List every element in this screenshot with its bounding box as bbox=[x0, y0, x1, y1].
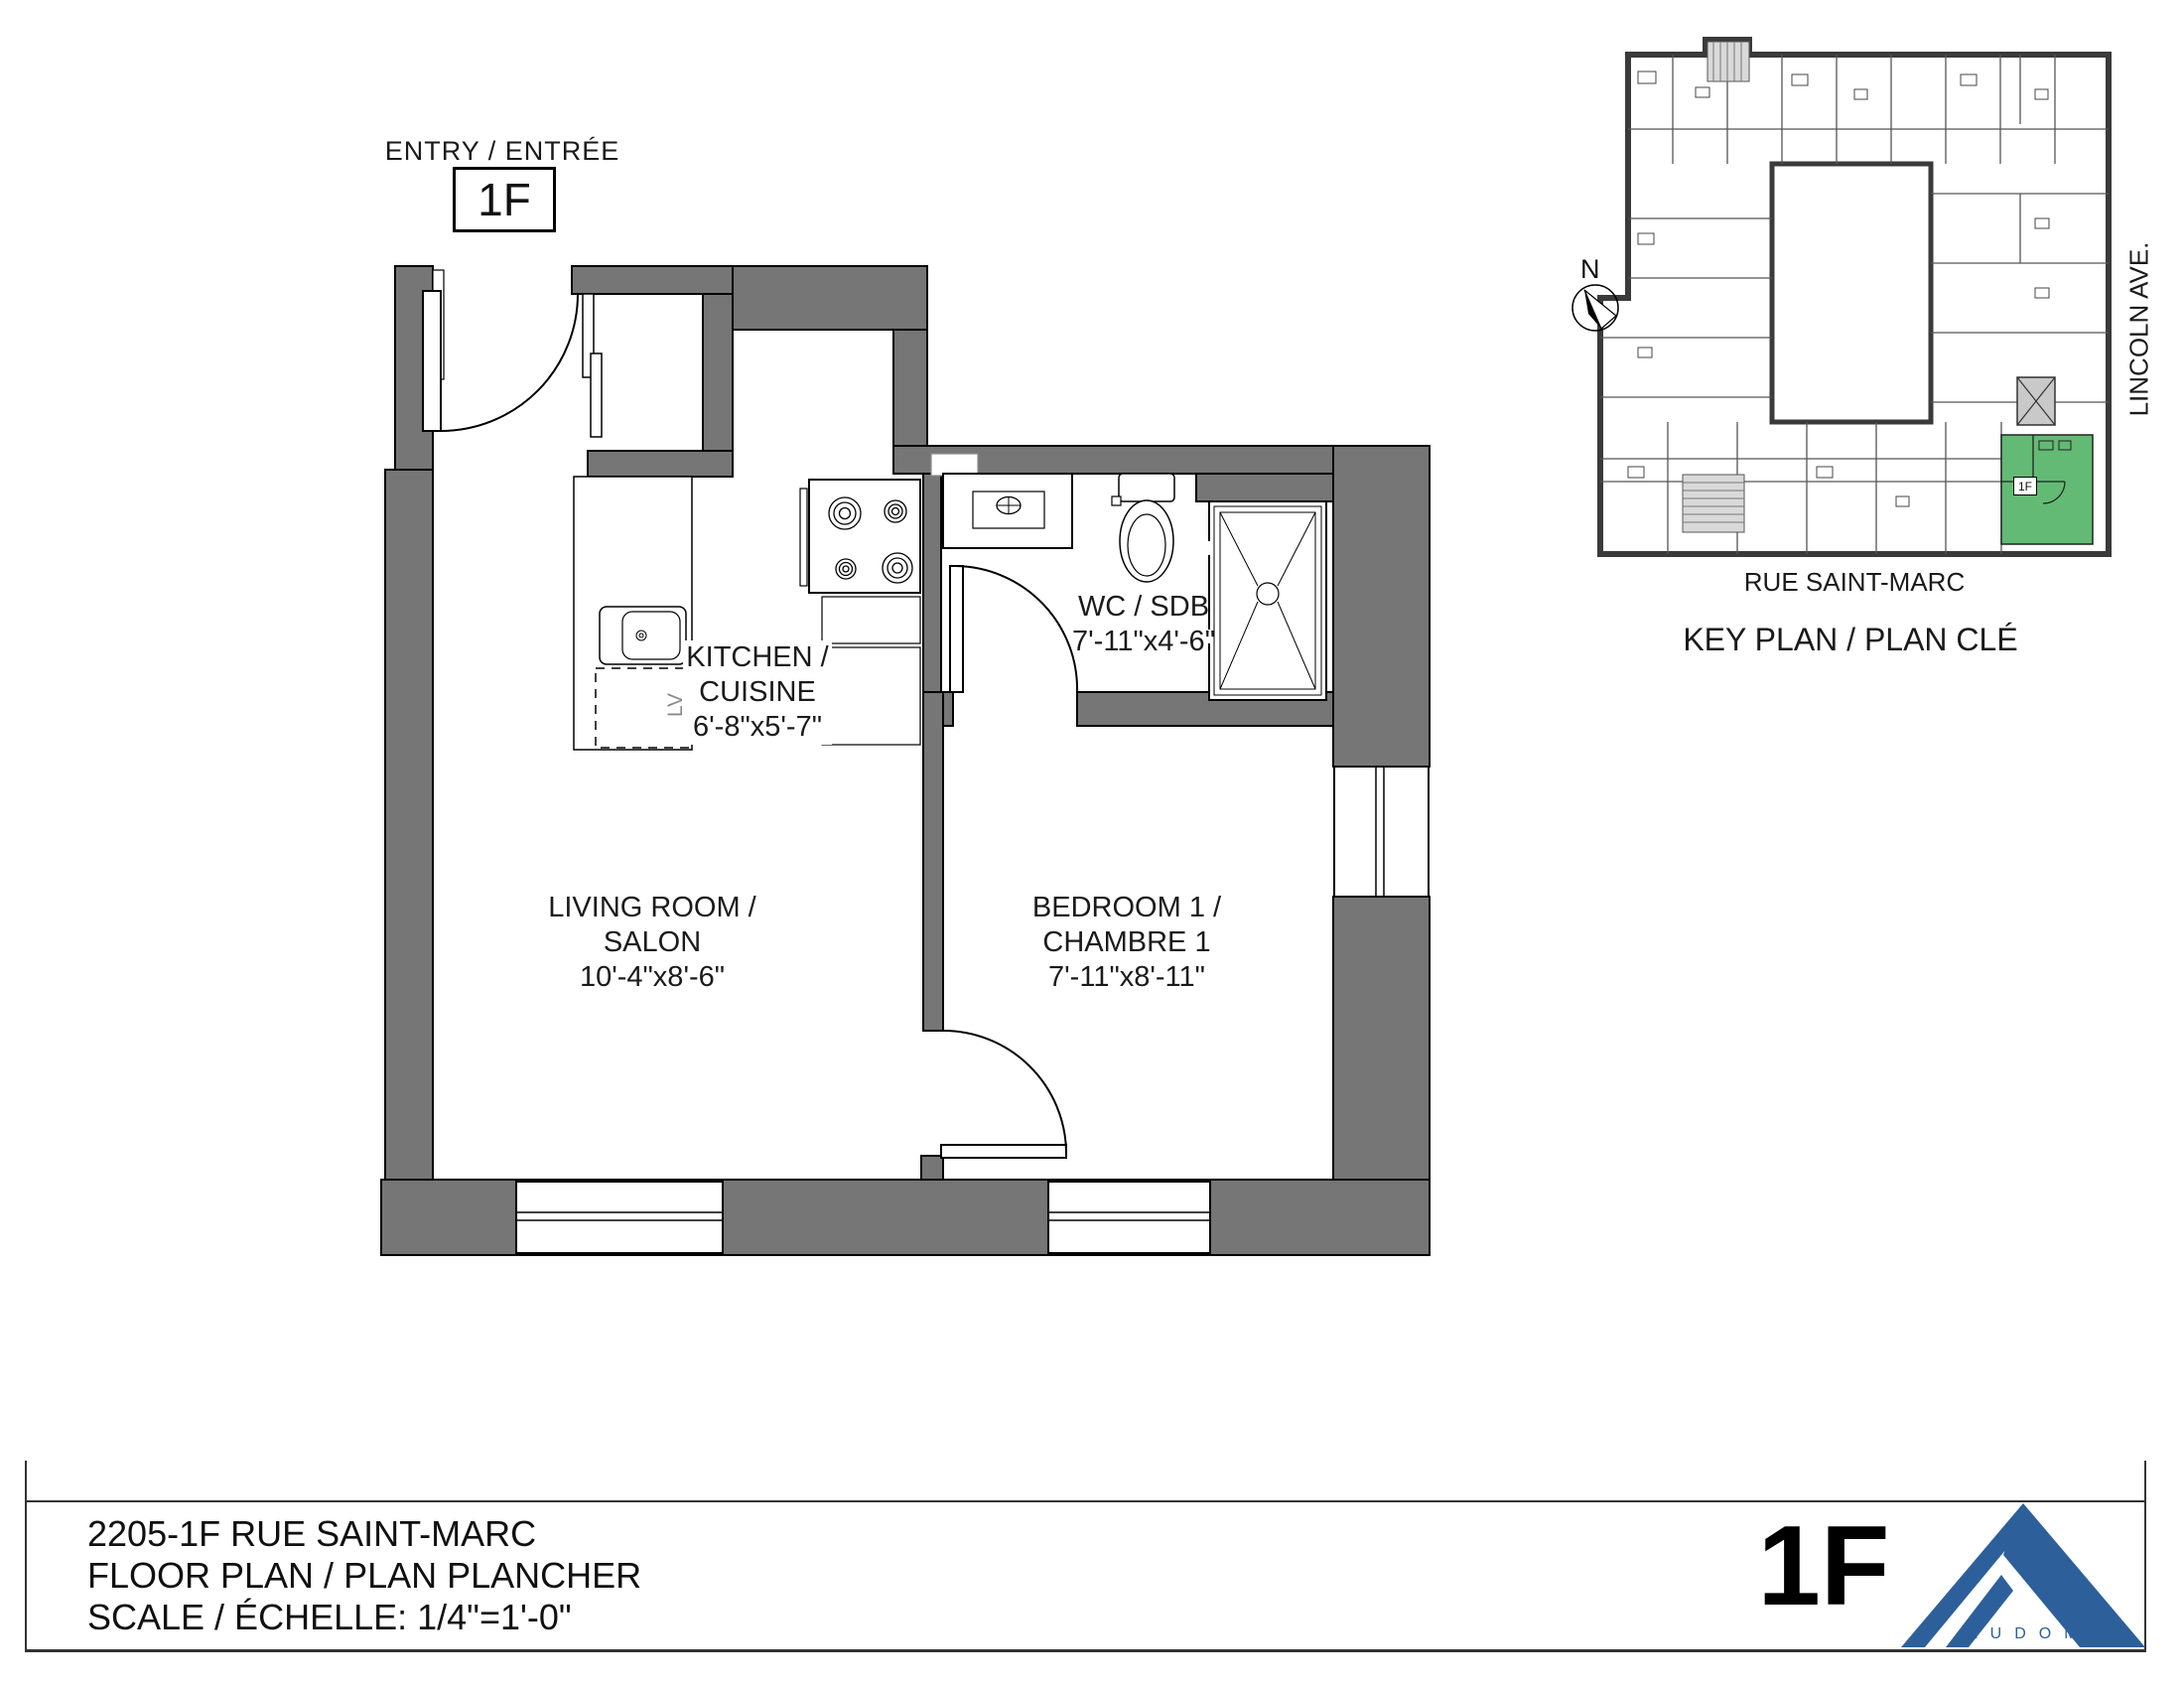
drawing-title: FLOOR PLAN / PLAN PLANCHER bbox=[87, 1555, 641, 1597]
bedroom-door bbox=[941, 1031, 1066, 1158]
left-wall-lower bbox=[385, 470, 433, 1182]
base-cabinet bbox=[822, 597, 920, 643]
sheet-unit-number: 1F bbox=[1739, 1507, 1908, 1626]
stairs-top bbox=[1707, 42, 1749, 81]
entry-unit-tag: 1F bbox=[453, 167, 556, 232]
street-label-rue-saint-marc: RUE SAINT-MARC bbox=[1706, 568, 2003, 598]
living-room-label: LIVING ROOM / SALON 10'-4"x8'-6" bbox=[523, 891, 781, 995]
floor-plan-sheet: { "entry": { "label": "ENTRY / ENTRÉE", … bbox=[0, 0, 2184, 1688]
shower-top-wall bbox=[1196, 474, 1333, 501]
refrigerator bbox=[822, 647, 920, 745]
entry-door bbox=[423, 291, 578, 431]
sheet-left-border bbox=[25, 1461, 27, 1652]
project-address: 2205-1F RUE SAINT-MARC bbox=[87, 1513, 641, 1555]
bathroom-dims: 7'-11"x4'-6" bbox=[1054, 625, 1233, 659]
right-wall-lower bbox=[1333, 897, 1430, 1180]
kitchen-label: KITCHEN / CUISINE 6'-8"x5'-7" bbox=[683, 640, 832, 745]
wall-notch bbox=[931, 454, 978, 476]
title-block-bottom-border bbox=[25, 1649, 2146, 1652]
right-wall-upper bbox=[1333, 446, 1430, 767]
interior-partition-wall bbox=[923, 692, 943, 1031]
stove bbox=[800, 480, 920, 593]
step-wall bbox=[893, 330, 927, 446]
kitchen-sink bbox=[600, 607, 686, 664]
entry-label: ENTRY / ENTRÉE bbox=[377, 136, 627, 167]
living-room-window bbox=[516, 1182, 723, 1253]
vanity-sink bbox=[943, 474, 1072, 548]
street-label-lincoln: LINCOLN AVE. bbox=[2124, 176, 2155, 484]
logo-wordmark: AUDOM bbox=[1967, 1625, 2091, 1643]
dishwasher-label: LV bbox=[664, 683, 688, 727]
closet-top-wall bbox=[572, 266, 733, 294]
north-label: N bbox=[1580, 254, 1600, 285]
bedroom-window bbox=[1048, 1182, 1210, 1253]
bedroom-door-stub bbox=[921, 1156, 943, 1182]
title-block-text: 2205-1F RUE SAINT-MARC FLOOR PLAN / PLAN… bbox=[87, 1513, 641, 1638]
walls bbox=[381, 266, 1430, 1255]
title-block-top-border bbox=[25, 1500, 2146, 1502]
bathroom-label: WC / SDB 7'-11"x4'-6" bbox=[1054, 590, 1233, 659]
elevator bbox=[2017, 377, 2055, 425]
bedroom-label: BEDROOM 1 / CHAMBRE 1 7'-11"x8'-11" bbox=[998, 891, 1256, 995]
courtyard bbox=[1772, 164, 1931, 422]
key-plan-unit-tag: 1F bbox=[2013, 477, 2037, 495]
living-room-dims: 10'-4"x8'-6" bbox=[523, 960, 781, 995]
key-plan-caption: KEY PLAN / PLAN CLÉ bbox=[1652, 622, 2049, 658]
bedroom-side-window bbox=[1334, 767, 1429, 897]
closet-bottom-wall bbox=[588, 451, 733, 477]
kitchen-top-wall bbox=[733, 266, 927, 330]
kitchen-dims: 6'-8"x5'-7" bbox=[683, 710, 832, 745]
closet-right-wall bbox=[703, 294, 733, 477]
toilet bbox=[1112, 474, 1174, 582]
key-plan-drawing bbox=[1569, 30, 2164, 576]
stairs-bottom bbox=[1683, 475, 1744, 532]
bathroom-fixtures bbox=[943, 474, 1326, 700]
kitchen-wc-divider bbox=[923, 474, 941, 692]
drawing-scale: SCALE / ÉCHELLE: 1/4"=1'-0" bbox=[87, 1597, 641, 1638]
closet-sliding-doors bbox=[583, 294, 602, 437]
bedroom-dims: 7'-11"x8'-11" bbox=[998, 960, 1256, 995]
